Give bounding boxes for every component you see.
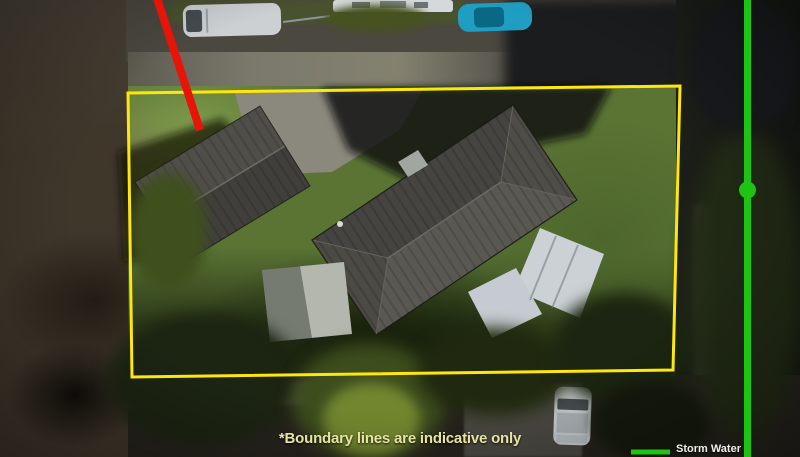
storm-water-legend-label: Storm Water xyxy=(676,443,741,455)
property-boundary xyxy=(128,86,680,377)
boundary-disclaimer: *Boundary lines are indicative only xyxy=(238,430,562,447)
red-marker-line xyxy=(155,0,200,130)
aerial-photo: *Boundary lines are indicative only Stor… xyxy=(0,0,800,457)
storm-water-node xyxy=(739,182,756,199)
annotation-overlay xyxy=(0,0,800,457)
